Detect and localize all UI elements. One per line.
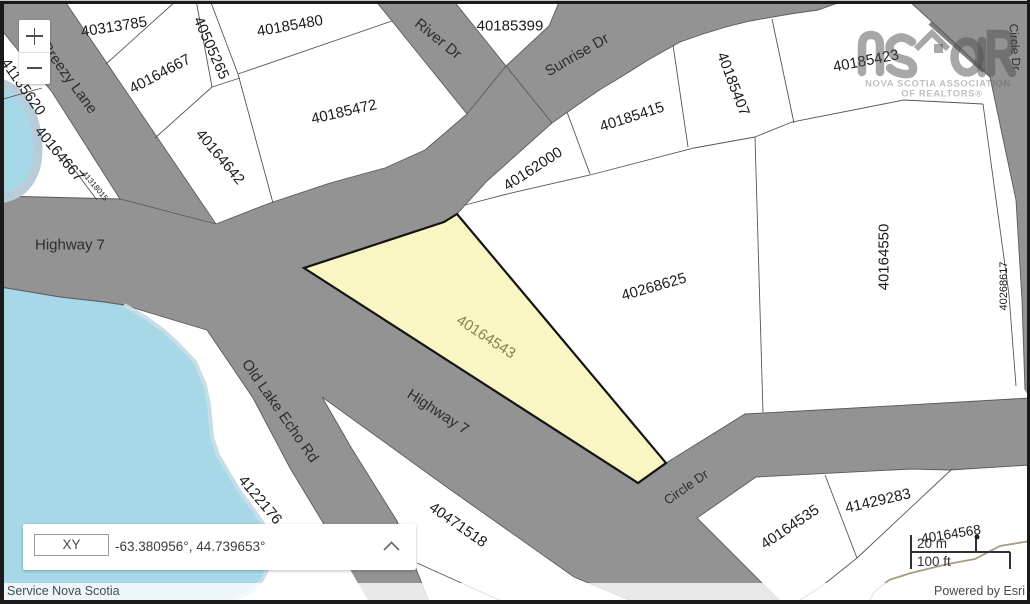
svg-text:40268617: 40268617 bbox=[998, 262, 1010, 311]
svg-text:20 m: 20 m bbox=[917, 536, 947, 551]
svg-text:100 ft: 100 ft bbox=[917, 554, 951, 569]
svg-text:40164550: 40164550 bbox=[876, 224, 893, 291]
svg-text:40185399: 40185399 bbox=[477, 18, 544, 35]
svg-text:Highway 7: Highway 7 bbox=[35, 237, 105, 254]
svg-text:OF REALTORS®: OF REALTORS® bbox=[901, 89, 982, 100]
